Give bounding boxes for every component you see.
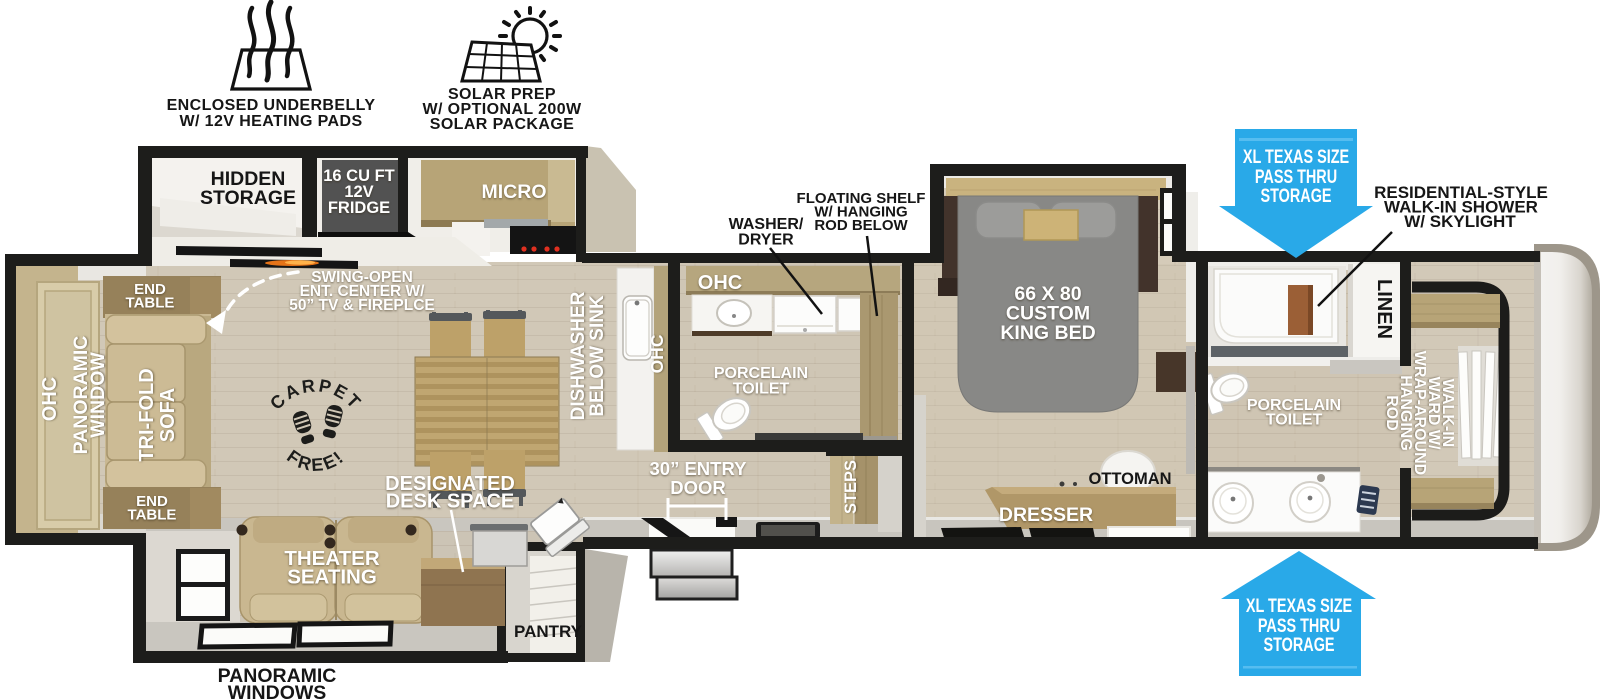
- svg-text:DESK SPACE: DESK SPACE: [386, 491, 515, 513]
- svg-text:WINDOWS: WINDOWS: [228, 682, 327, 699]
- svg-text:STORAGE: STORAGE: [1263, 633, 1334, 656]
- svg-text:PORCELAIN: PORCELAIN: [714, 365, 808, 382]
- svg-text:DOOR: DOOR: [670, 477, 726, 498]
- svg-text:DRYER: DRYER: [738, 232, 794, 249]
- svg-text:WINDOW: WINDOW: [87, 352, 109, 438]
- svg-text:DISHWASHER: DISHWASHER: [568, 291, 589, 420]
- svg-text:TOILET: TOILET: [1266, 412, 1323, 429]
- svg-text:SOLAR PACKAGE: SOLAR PACKAGE: [430, 116, 574, 133]
- svg-text:STORAGE: STORAGE: [200, 187, 296, 209]
- svg-text:ROD: ROD: [1383, 395, 1400, 431]
- svg-text:WASHER/: WASHER/: [729, 216, 804, 233]
- svg-text:STORAGE: STORAGE: [1260, 184, 1331, 207]
- svg-text:OHC: OHC: [647, 334, 667, 373]
- svg-text:LINEN: LINEN: [1373, 279, 1395, 339]
- svg-text:FRIDGE: FRIDGE: [328, 199, 390, 217]
- svg-text:DRESSER: DRESSER: [999, 504, 1093, 526]
- svg-text:PANTRY: PANTRY: [514, 622, 583, 641]
- svg-text:TABLE: TABLE: [128, 507, 177, 524]
- svg-text:SOFA: SOFA: [157, 388, 179, 442]
- svg-text:W/ 12V HEATING PADS: W/ 12V HEATING PADS: [179, 113, 362, 130]
- svg-text:W/ SKYLIGHT: W/ SKYLIGHT: [1404, 212, 1516, 231]
- svg-text:SEATING: SEATING: [287, 566, 377, 589]
- svg-text:STEPS: STEPS: [842, 460, 860, 514]
- svg-text:MICRO: MICRO: [482, 181, 547, 203]
- svg-text:ROD BELOW: ROD BELOW: [814, 217, 908, 234]
- svg-text:OHC: OHC: [698, 272, 742, 294]
- svg-text:TOILET: TOILET: [733, 381, 790, 398]
- svg-text:TABLE: TABLE: [126, 295, 175, 312]
- svg-text:30” ENTRY: 30” ENTRY: [650, 458, 748, 479]
- svg-text:BELOW SINK: BELOW SINK: [587, 295, 608, 417]
- svg-text:OTTOMAN: OTTOMAN: [1088, 470, 1171, 488]
- svg-text:50” TV & FIREPLCE: 50” TV & FIREPLCE: [289, 297, 435, 314]
- svg-text:ENCLOSED UNDERBELLY: ENCLOSED UNDERBELLY: [167, 97, 376, 114]
- svg-text:KING BED: KING BED: [1000, 322, 1095, 344]
- svg-text:TRI-FOLD: TRI-FOLD: [136, 368, 158, 461]
- svg-text:OHC: OHC: [39, 377, 61, 421]
